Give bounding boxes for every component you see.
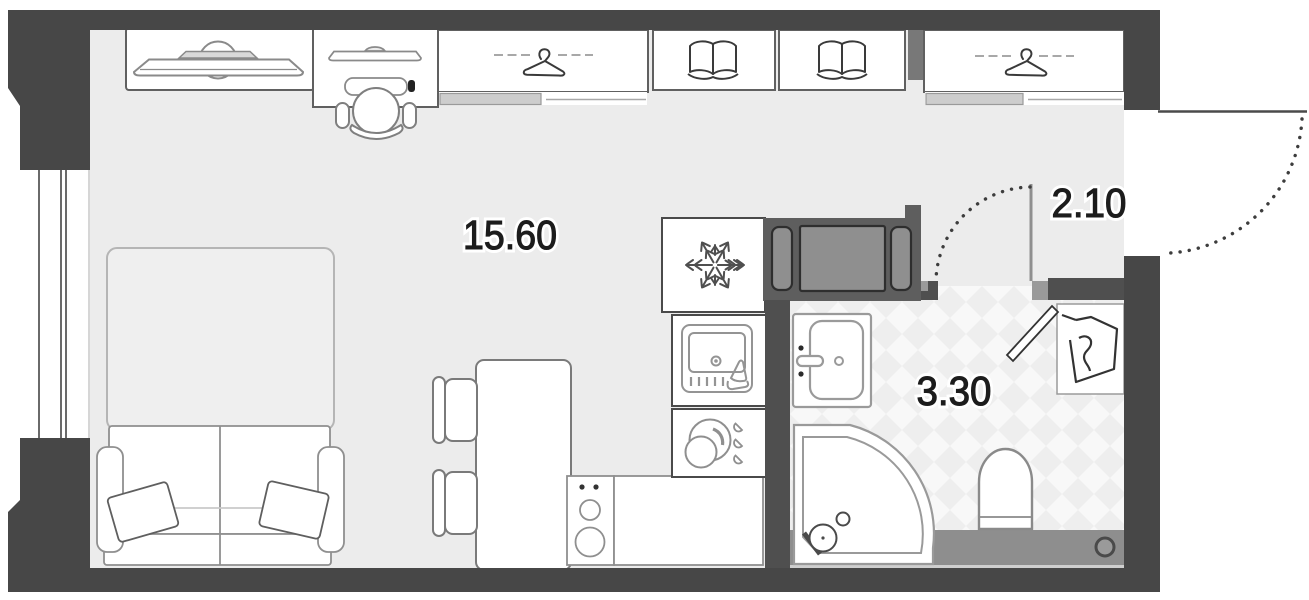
svg-text:15.60: 15.60 xyxy=(463,212,557,258)
svg-text:2.10: 2.10 xyxy=(1052,180,1127,226)
svg-text:3.30: 3.30 xyxy=(917,368,992,414)
